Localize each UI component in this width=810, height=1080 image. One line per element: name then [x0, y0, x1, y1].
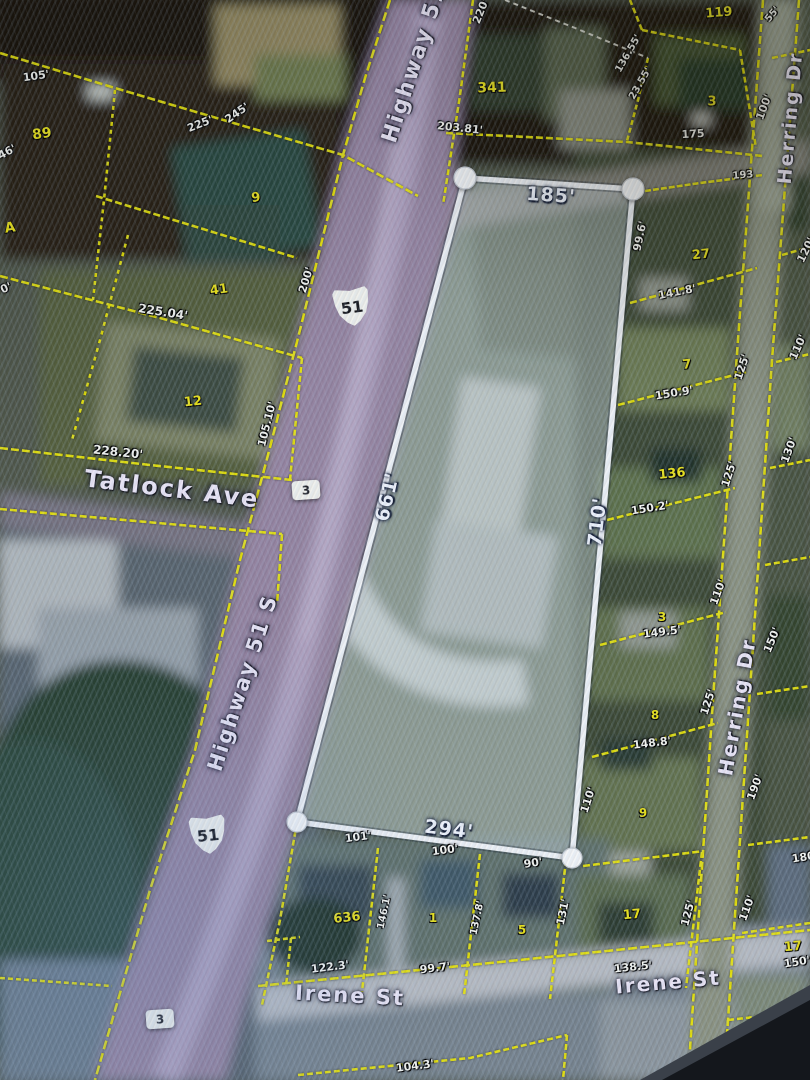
dimension-label: 150' [773, 1015, 801, 1030]
parcel-number: 89 [31, 126, 52, 143]
street-label: Herring Dr [776, 51, 807, 185]
parcel-number: 1 [429, 912, 437, 924]
selected-parcel-dimension: 185' [526, 185, 577, 207]
state-route-3-marker-icon: 3 [145, 1009, 174, 1030]
dimension-label: 200' [297, 266, 315, 294]
parcel-number: 5 [518, 924, 526, 936]
parcel-number: 136 [658, 466, 686, 482]
street-label: Herring Dr [715, 637, 759, 777]
parcel-number: 7 [682, 358, 692, 372]
dimension-label: 130' [779, 436, 798, 465]
dimension-label: 105' [22, 69, 50, 84]
state-route-3-marker-icon: 3 [291, 480, 320, 501]
dimension-label: 225.04' [137, 302, 188, 322]
dimension-label: 180' [791, 850, 810, 865]
parcel-number: 27 [691, 248, 710, 263]
dimension-label: 175 [681, 128, 705, 140]
street-label: Irene St [294, 983, 405, 1010]
us-route-51-shield-icon: 51 [188, 814, 228, 856]
parcel-number: 8 [651, 709, 659, 721]
dimension-label: 101' [344, 830, 371, 844]
parcel-number: 17 [783, 940, 802, 955]
dimension-label: 150' [783, 955, 810, 970]
dimension-label: 220' [471, 0, 491, 25]
parcel-number: 3 [658, 611, 666, 623]
dimension-label: 99.6' [631, 220, 648, 252]
dimension-label: 149.5' [642, 624, 681, 640]
parcel-number: 9 [639, 807, 647, 819]
selected-parcel-dimension: 294' [423, 818, 474, 843]
dimension-label: 193 [732, 170, 754, 182]
dimension-label: 125' [733, 353, 752, 381]
parcel-number: 12 [183, 395, 202, 410]
parcel-number: 17 [622, 908, 641, 923]
dimension-label: 245' [223, 101, 251, 125]
dimension-label: 55' [764, 5, 783, 24]
dimension-label: 141.8' [657, 283, 697, 301]
dimension-label: 190' [745, 773, 764, 802]
dimension-label: 99.7' [419, 961, 451, 976]
dimension-label: 105.10' [256, 400, 278, 447]
parcel-number: 119 [705, 5, 733, 20]
parcel-number: 3 [707, 96, 716, 109]
parcel-number: 41 [209, 282, 229, 297]
dimension-label: 146.1' [377, 894, 394, 930]
dimension-label: 100' [754, 93, 773, 122]
street-label: Highway 51 S [205, 592, 282, 774]
dimension-label: 23.55' [628, 66, 654, 101]
dimension-label: 110' [788, 333, 809, 362]
dimension-label: 150' [762, 626, 782, 655]
dimension-label: 125' [720, 460, 739, 488]
dimension-label: 110' [708, 578, 727, 607]
dimension-label: 104.3' [395, 1058, 434, 1074]
selected-parcel-dimension: 661' [373, 471, 403, 523]
dimension-label: 225' [186, 114, 215, 134]
dimension-label: 110' [579, 786, 598, 814]
dimension-label: 150.9' [654, 385, 693, 402]
dimension-label: 148.8' [632, 735, 671, 751]
street-label: Tatlock Ave [83, 466, 260, 511]
dimension-label: 0' [0, 281, 13, 296]
map-labels: 105'225'245'46'0'225.04'228.20'105.10'20… [0, 0, 810, 1080]
dimension-label: 203.81' [437, 120, 484, 136]
dimension-label: 100' [431, 843, 458, 857]
parcel-number: A [4, 220, 17, 235]
dimension-label: 137.8' [470, 900, 487, 936]
parcel-number: 9 [251, 191, 262, 205]
us-route-51-shield-icon: 51 [332, 286, 373, 329]
dimension-label: 90' [523, 856, 543, 870]
dimension-label: 120' [795, 236, 810, 264]
parcel-number: 636 [333, 910, 361, 926]
dimension-label: 136.55' [614, 33, 643, 74]
dimension-label: 46' [0, 143, 18, 161]
dimension-label: 122.3' [310, 959, 349, 975]
dimension-label: 228.20' [93, 443, 144, 460]
dimension-label: 110' [737, 894, 756, 923]
dimension-label: 150.2' [630, 500, 669, 517]
parcel-map[interactable]: 105'225'245'46'0'225.04'228.20'105.10'20… [0, 0, 810, 1080]
dimension-label: 131' [555, 898, 571, 926]
dimension-label: 125' [699, 688, 718, 716]
selected-parcel-dimension: 710' [586, 496, 611, 547]
dimension-label: 125' [679, 899, 696, 927]
parcel-number: 341 [477, 80, 507, 95]
